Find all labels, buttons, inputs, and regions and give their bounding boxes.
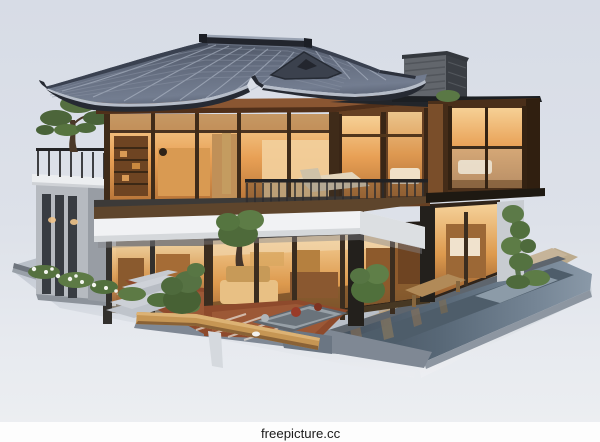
svg-text:freepicture.cc: freepicture.cc	[261, 426, 341, 441]
